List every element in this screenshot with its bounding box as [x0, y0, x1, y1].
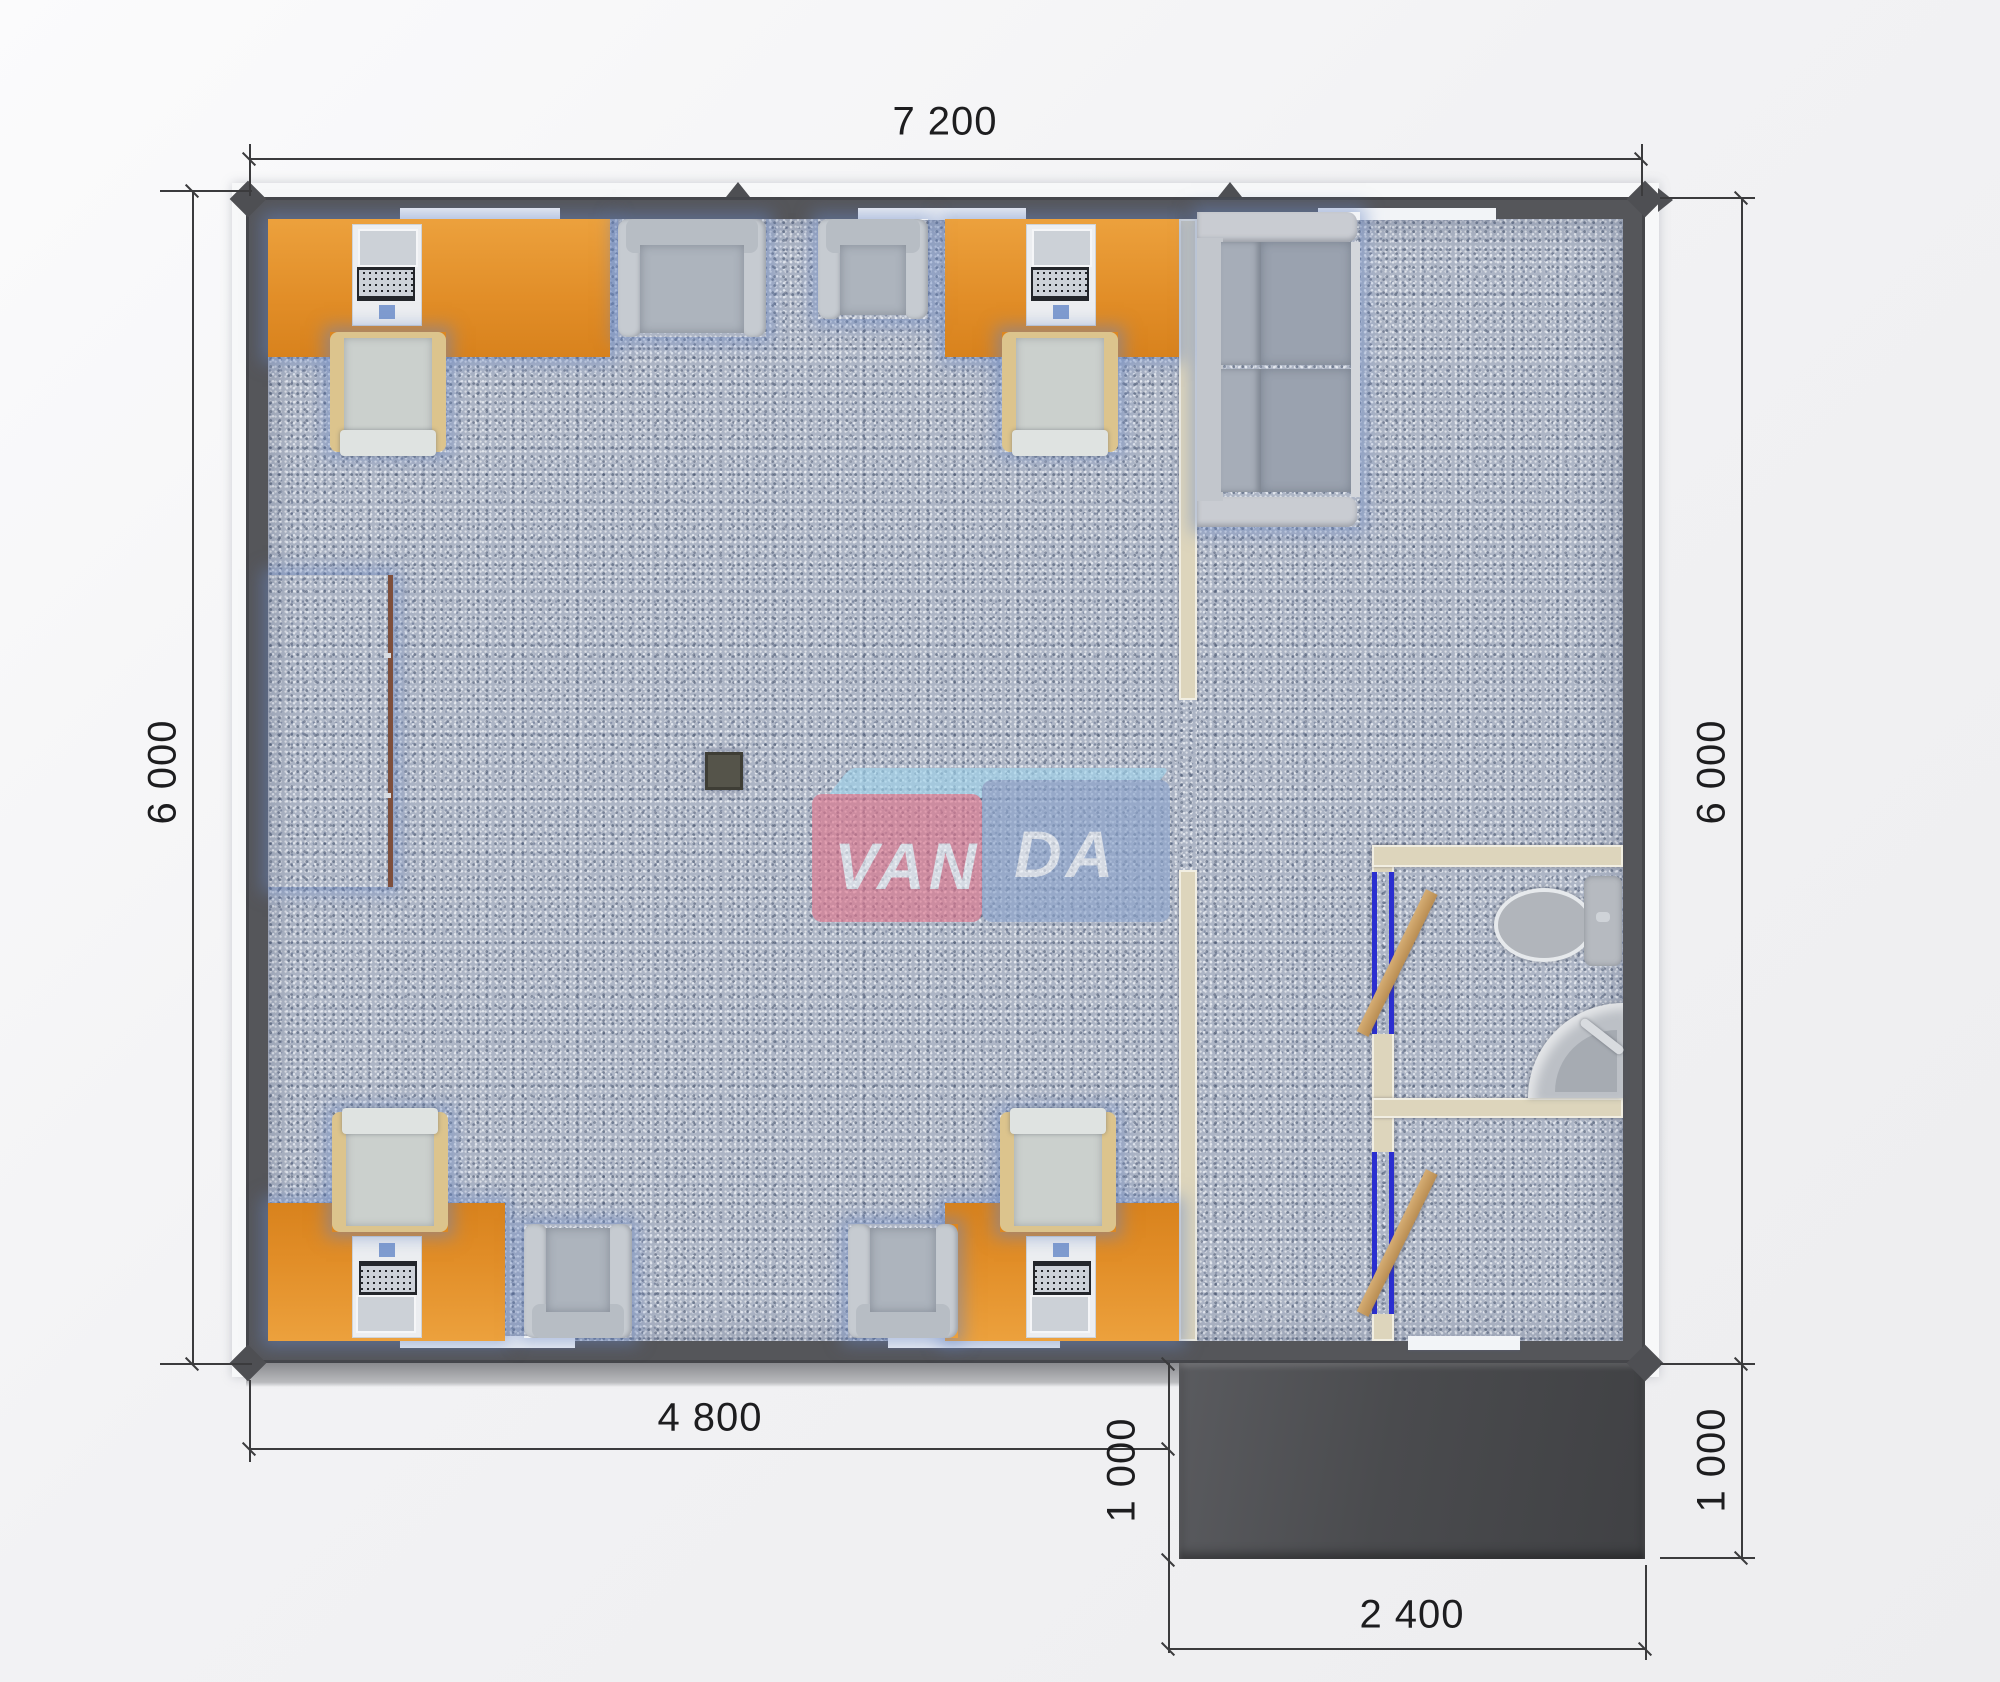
floor-drain	[705, 752, 743, 790]
sofa	[1197, 212, 1360, 527]
dim-line-porch-bottom	[1168, 1648, 1645, 1650]
chair-backrest	[1010, 1108, 1106, 1134]
dim-line-porch-left	[1168, 1363, 1170, 1653]
office-floor	[268, 219, 1623, 1341]
dim-right-height: 6 000	[1690, 719, 1735, 824]
chair-backrest	[342, 1108, 438, 1134]
dim-line-left	[192, 190, 194, 1363]
computer-keyboard	[1031, 267, 1089, 301]
sofa-back-cushion	[1221, 242, 1261, 365]
task-chair-bottom-left	[332, 1112, 448, 1232]
sideboard-handle-icon	[384, 793, 391, 798]
computer-touchpad	[1053, 305, 1069, 319]
armchair-seat	[640, 245, 744, 333]
sideboard-handle-icon	[384, 653, 391, 658]
entrance-door	[1408, 1336, 1520, 1350]
dim-line-top	[249, 158, 1641, 160]
vestibule-door-frame-2	[1389, 1152, 1394, 1314]
chair-seat	[346, 1118, 434, 1226]
computer-keyboard	[359, 1261, 417, 1295]
floor-plan-canvas: VAN DA 7 200 6 000 6 000 1 000 4 800 1 0…	[0, 0, 2000, 1682]
computer-keyboard	[1033, 1261, 1091, 1295]
dim-ext	[249, 144, 251, 196]
chair-backrest	[1012, 430, 1108, 456]
armchair-seat	[546, 1228, 610, 1312]
computer-screen	[1032, 229, 1092, 267]
dim-porch-left: 1 000	[1100, 1417, 1145, 1522]
task-chair-bottom-right	[1000, 1112, 1116, 1232]
toilet-flush-button	[1596, 912, 1610, 922]
computer-top-right	[1026, 224, 1096, 326]
computer-touchpad	[379, 305, 395, 319]
sofa-back-cushion	[1221, 369, 1261, 492]
computer-touchpad	[379, 1243, 395, 1257]
computer-touchpad	[1053, 1243, 1069, 1257]
task-chair-top-left	[330, 332, 446, 452]
armchair-seat	[870, 1228, 936, 1312]
armchair-top-2	[818, 219, 928, 319]
computer-bottom-right	[1026, 1236, 1096, 1338]
sideboard	[268, 575, 393, 887]
dim-porch-right: 1 000	[1690, 1407, 1735, 1512]
wc-top-wall	[1372, 845, 1623, 867]
dim-ext	[1645, 1565, 1647, 1660]
dim-office-width: 4 800	[657, 1396, 762, 1441]
dim-top-width: 7 200	[892, 100, 997, 145]
toilet-icon	[1494, 888, 1594, 962]
chair-backrest	[340, 430, 436, 456]
chair-seat	[1014, 1118, 1102, 1226]
dim-ext	[160, 1363, 252, 1365]
joint-marker-icon	[1658, 188, 1673, 212]
joint-marker-icon	[1218, 182, 1242, 197]
partition-doorway	[1179, 700, 1197, 870]
sofa-back-panel	[1197, 238, 1223, 501]
dim-line-right	[1741, 197, 1743, 1557]
armchair-bottom-2	[848, 1224, 958, 1338]
sofa-front-edge	[1351, 242, 1360, 497]
sofa-seat-cushion	[1261, 369, 1351, 492]
wc-door-frame-2	[1389, 872, 1394, 1034]
dim-left-height: 6 000	[141, 719, 186, 824]
partition-wall-lower	[1179, 870, 1197, 1341]
computer-top-left	[352, 224, 422, 326]
dim-ext	[1641, 144, 1643, 196]
computer-keyboard	[357, 267, 415, 301]
armchair-top-1	[618, 219, 766, 337]
task-chair-top-right	[1002, 332, 1118, 452]
sofa-armrest	[1197, 497, 1357, 527]
joint-marker-icon	[726, 182, 750, 197]
computer-screen	[358, 229, 418, 267]
entrance-porch	[1179, 1363, 1645, 1559]
wc-bottom-wall	[1372, 1098, 1623, 1118]
sofa-seat-cushion	[1261, 242, 1351, 365]
armchair-seat	[840, 245, 906, 315]
computer-screen	[1030, 1295, 1090, 1333]
computer-bottom-left	[352, 1236, 422, 1338]
computer-screen	[356, 1295, 416, 1333]
armchair-bottom-1	[524, 1224, 632, 1338]
dim-ext	[160, 190, 252, 192]
dim-line-bottom-left	[249, 1448, 1168, 1450]
dim-porch-width: 2 400	[1359, 1593, 1464, 1638]
partition-wall	[1179, 219, 1197, 700]
